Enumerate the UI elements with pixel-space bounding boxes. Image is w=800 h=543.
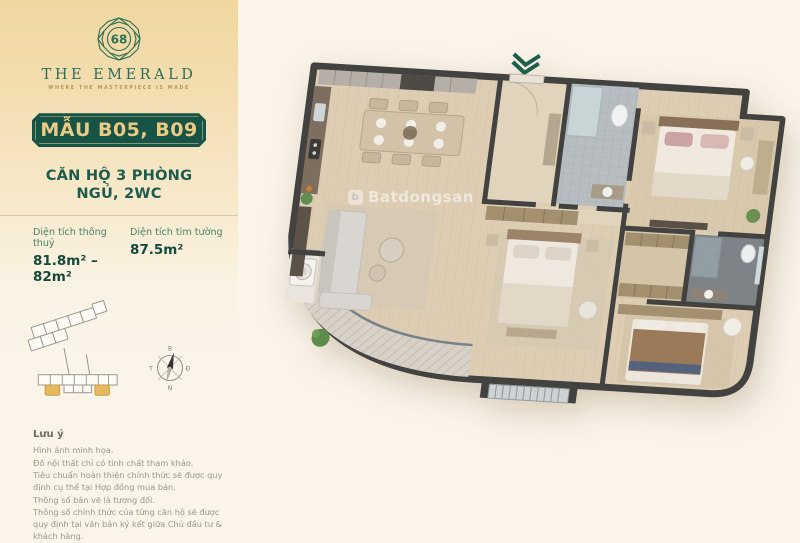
pillow [664,131,694,147]
building-locator: B Đ N T [0,299,238,405]
area-clear-value: 81.8m² – 82m² [33,253,130,285]
shower-enclosure [691,237,722,278]
notes-list: Hình ảnh minh họa. Đồ nội thất chỉ có tí… [33,444,224,542]
floorplan-area: b Batdongsan [238,46,800,448]
note-item: Thông số bản vẽ là tương đối. [33,494,224,506]
area-gross: Diện tích tim tường 87.5m² [130,227,227,285]
building-footprint-diagram [16,299,136,399]
pillow [700,134,730,150]
area-gross-label: Diện tích tim tường [130,227,227,238]
nightstand [740,127,755,141]
brand-name: THE EMERALD [0,68,238,83]
footprint-tower-wing [24,301,112,351]
emerald-gem-icon: 68 [96,16,142,62]
unit-badge-label: MẪU B05, B09 [40,119,197,141]
footprint-base-bar [38,375,117,385]
note-item: Thông số chính thức của từng căn hộ sẽ đ… [33,506,224,543]
info-panel: 68 THE EMERALD WHERE THE MASTERPIECE IS … [0,0,238,449]
duvet [498,283,573,327]
area-gross-value: 87.5m² [130,242,227,258]
note-item: Hình ảnh minh họa. [33,444,224,456]
pillow [512,244,540,259]
unit-type-title: CĂN HỘ 3 PHÒNG NGỦ, 2WC [0,167,238,202]
logo-number: 68 [111,33,128,47]
brand-tagline: WHERE THE MASTERPIECE IS MADE [0,87,238,92]
dressing-area [616,230,693,302]
footprint-lower-cells [64,385,91,393]
kitchen-appliance-tower [400,74,436,91]
floorplan-3d-render [238,46,800,448]
panel-divider [0,215,238,216]
pillow [544,246,572,261]
pillow [638,319,667,331]
sofa-chaise [319,292,373,311]
nightstand [641,121,656,135]
shower-enclosure [567,86,603,138]
footprint-stem [64,349,90,376]
area-clear-label: Diện tích thông thuỷ [33,227,130,249]
bedroom-master [625,113,780,235]
compass-icon: B Đ N T [146,343,194,391]
area-specs: Diện tích thông thuỷ 81.8m² – 82m² Diện … [0,227,238,285]
pillow [674,321,703,333]
compass-south-label: N [168,385,173,391]
compass-west-label: T [148,366,153,373]
note-item: Tiêu chuẩn hoàn thiện chính thức sẽ được… [33,469,224,494]
compass-east-label: Đ [186,366,191,373]
brand-logo: 68 [0,16,238,62]
disclaimer-notes: Lưu ý Hình ảnh minh họa. Đồ nội thất chỉ… [0,429,238,542]
entrance-arrow-icon [512,54,540,73]
kitchen-sink [313,103,326,122]
note-item: Đồ nội thất chỉ có tính chất tham khảo. [33,457,224,469]
notes-title: Lưu ý [33,429,224,440]
nightstand [486,234,500,247]
compass-north-label: B [168,346,172,353]
duvet [651,172,730,200]
area-clear: Diện tích thông thuỷ 81.8m² – 82m² [33,227,130,285]
nightstand [585,240,599,253]
unit-badge: MẪU B05, B09 [32,113,206,147]
bathroom-2 [686,234,766,306]
